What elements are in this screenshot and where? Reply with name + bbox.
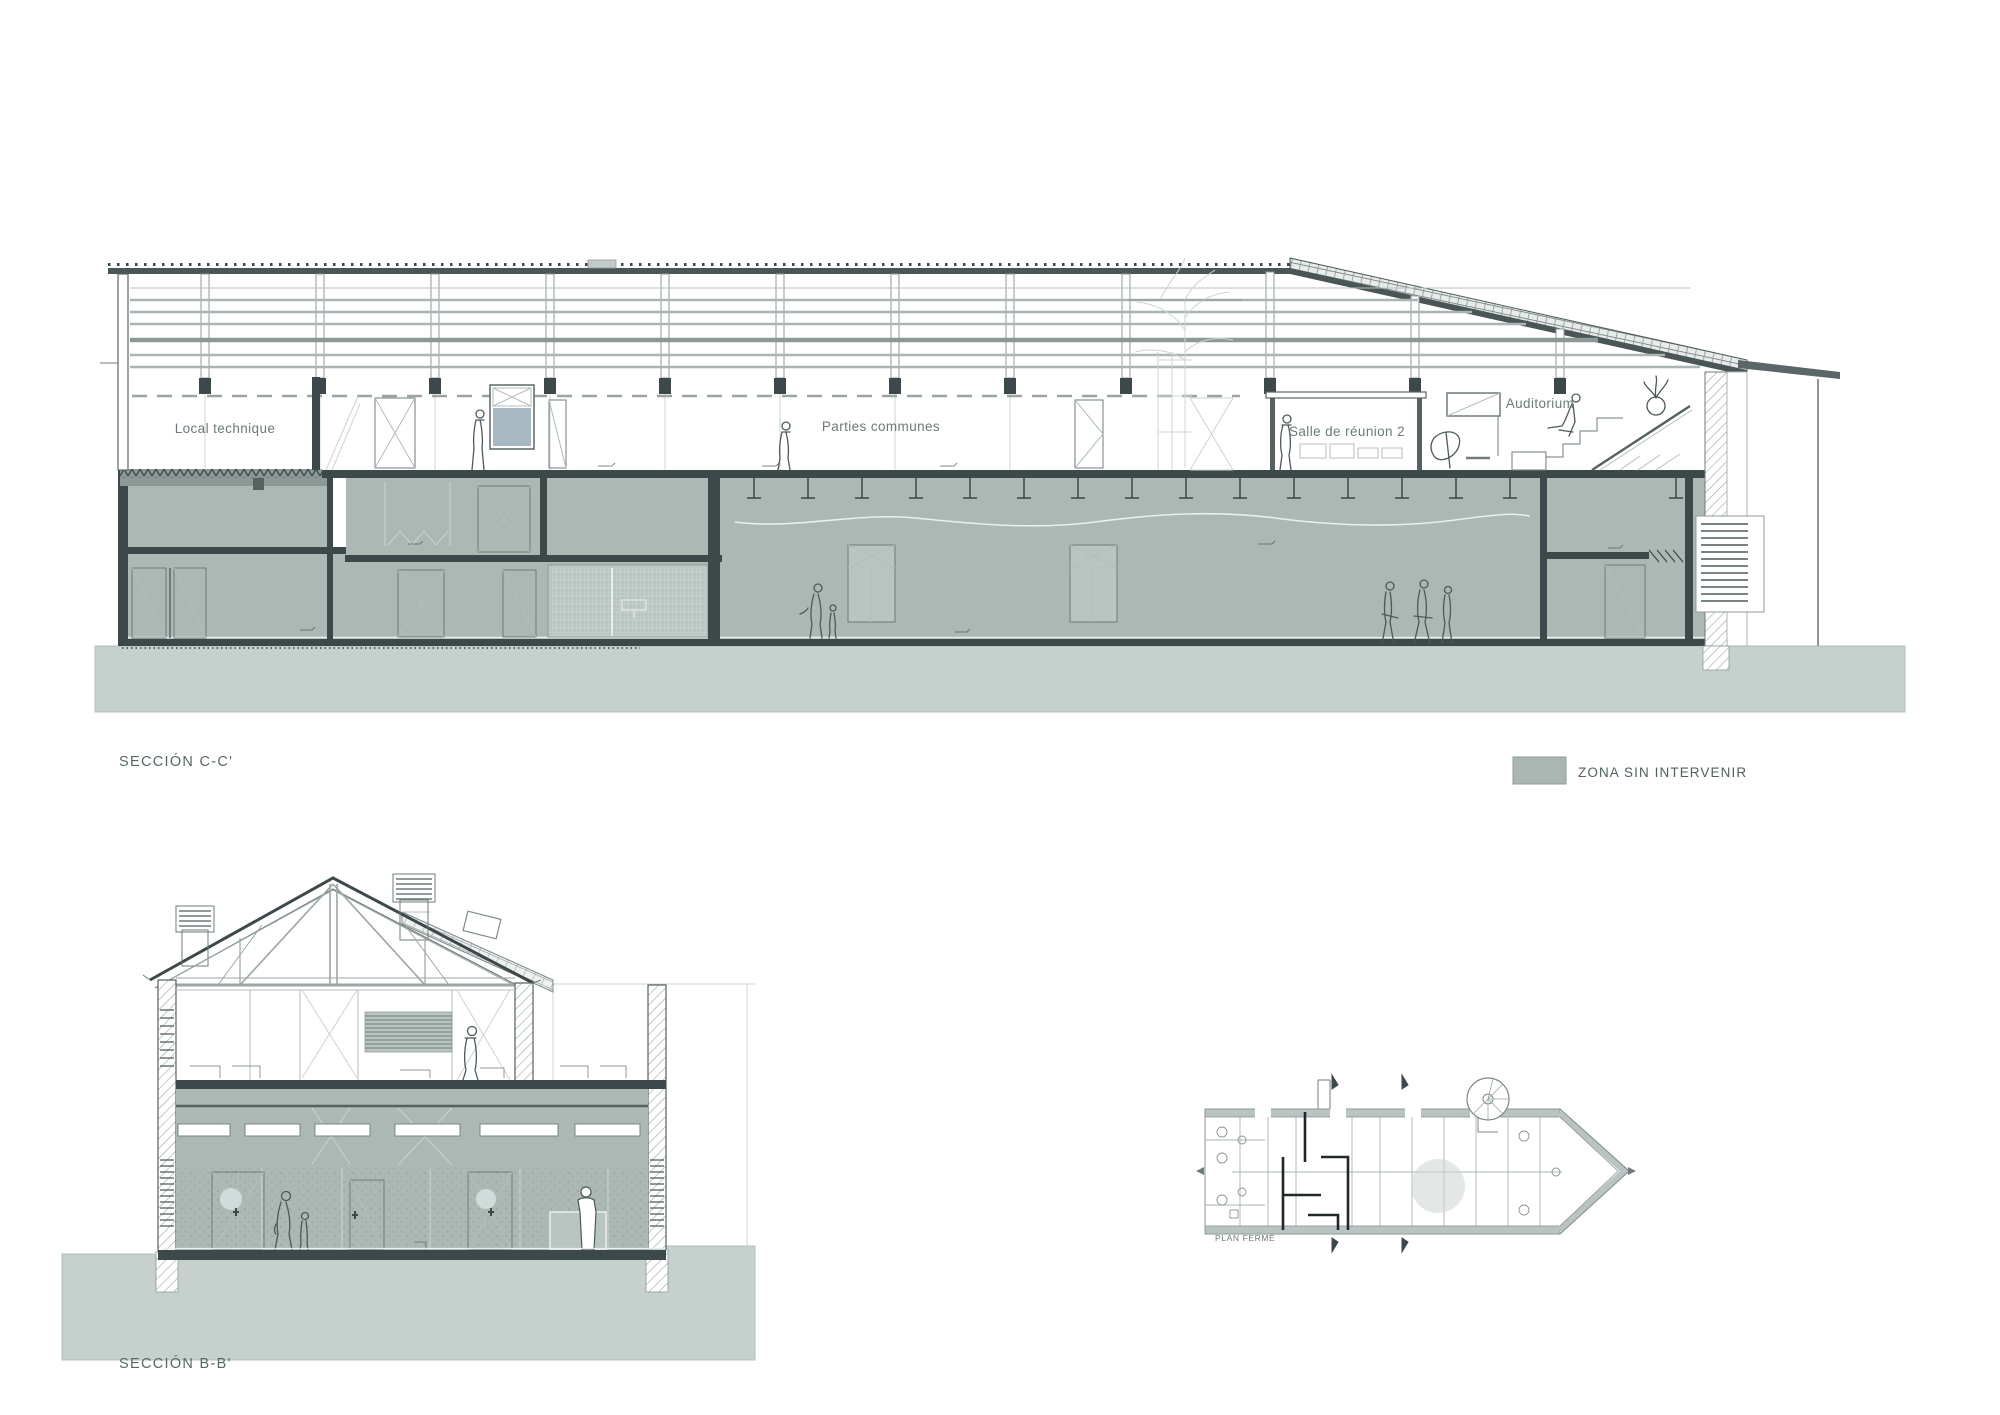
porthole-light xyxy=(476,1189,496,1209)
drawing-sheet: Local technique Parties communes Salle d… xyxy=(0,0,2000,1415)
door xyxy=(549,400,566,468)
insulated-slab-strip xyxy=(120,469,322,478)
section-cc-title: SECCIÓN C-C' xyxy=(119,753,233,770)
vent-box xyxy=(253,478,264,490)
porthole-light xyxy=(220,1188,242,1210)
rooftop-unit xyxy=(588,260,616,268)
legend: ZONA SIN INTERVENIR xyxy=(1513,757,1747,784)
ground-mass-cc xyxy=(95,646,1905,712)
legend-label: ZONA SIN INTERVENIR xyxy=(1578,765,1747,780)
legend-swatch xyxy=(1513,757,1566,784)
basement-floor-slab xyxy=(118,639,1747,646)
section-bb: SECCIÓN B-B' xyxy=(62,874,755,1372)
bb-upper-slab xyxy=(176,1080,666,1089)
auditorium-steps xyxy=(1512,406,1692,470)
room-label-auditorium: Auditorium xyxy=(1506,396,1575,411)
floor-plan: PLAN FERMÉ xyxy=(1196,1075,1636,1252)
eave-fascia xyxy=(1738,360,1840,379)
drawing-canvas: Local technique Parties communes Salle d… xyxy=(0,0,2000,1415)
columns xyxy=(199,272,1566,470)
shaft xyxy=(333,478,346,554)
interior-tree xyxy=(1128,258,1242,470)
ground-floor-elements xyxy=(312,258,1692,470)
person-silhouette xyxy=(463,1027,478,1081)
room-label-local-technique: Local technique xyxy=(175,421,276,436)
person-silhouette xyxy=(472,410,484,470)
hatched-ceiling xyxy=(120,478,327,486)
bb-floor-slab xyxy=(158,1250,666,1260)
transom-window xyxy=(1447,393,1500,458)
wall xyxy=(312,377,320,470)
bb-upper-floor xyxy=(176,990,626,1080)
roller-blind xyxy=(365,1012,452,1052)
skylight xyxy=(463,911,501,939)
mannequin xyxy=(1431,432,1460,468)
plan-circle-zone xyxy=(1411,1159,1465,1213)
roof-truss xyxy=(162,884,523,990)
right-wall xyxy=(1696,372,1764,670)
window-glazed xyxy=(490,385,534,449)
section-bb-title: SECCIÓN B-B' xyxy=(119,1355,232,1372)
ground-floor-slab xyxy=(118,470,1747,478)
stair-faint xyxy=(326,396,360,470)
door xyxy=(1075,400,1103,468)
floor-plan-title: PLAN FERMÉ xyxy=(1215,1233,1275,1243)
cage-enclosure xyxy=(548,565,708,637)
left-wall xyxy=(118,274,128,640)
basement-window xyxy=(1070,545,1117,622)
door xyxy=(375,398,415,468)
basement-window xyxy=(848,545,895,622)
plant xyxy=(1644,376,1668,415)
faint-desks xyxy=(190,1066,626,1078)
room-label-salle-reunion: Salle de réunion 2 xyxy=(1289,424,1405,439)
plan-walls xyxy=(1205,1080,1629,1234)
chimney-left xyxy=(176,906,214,966)
room-label-parties-communes: Parties communes xyxy=(822,419,940,434)
section-cc: Local technique Parties communes Salle d… xyxy=(95,258,1905,770)
